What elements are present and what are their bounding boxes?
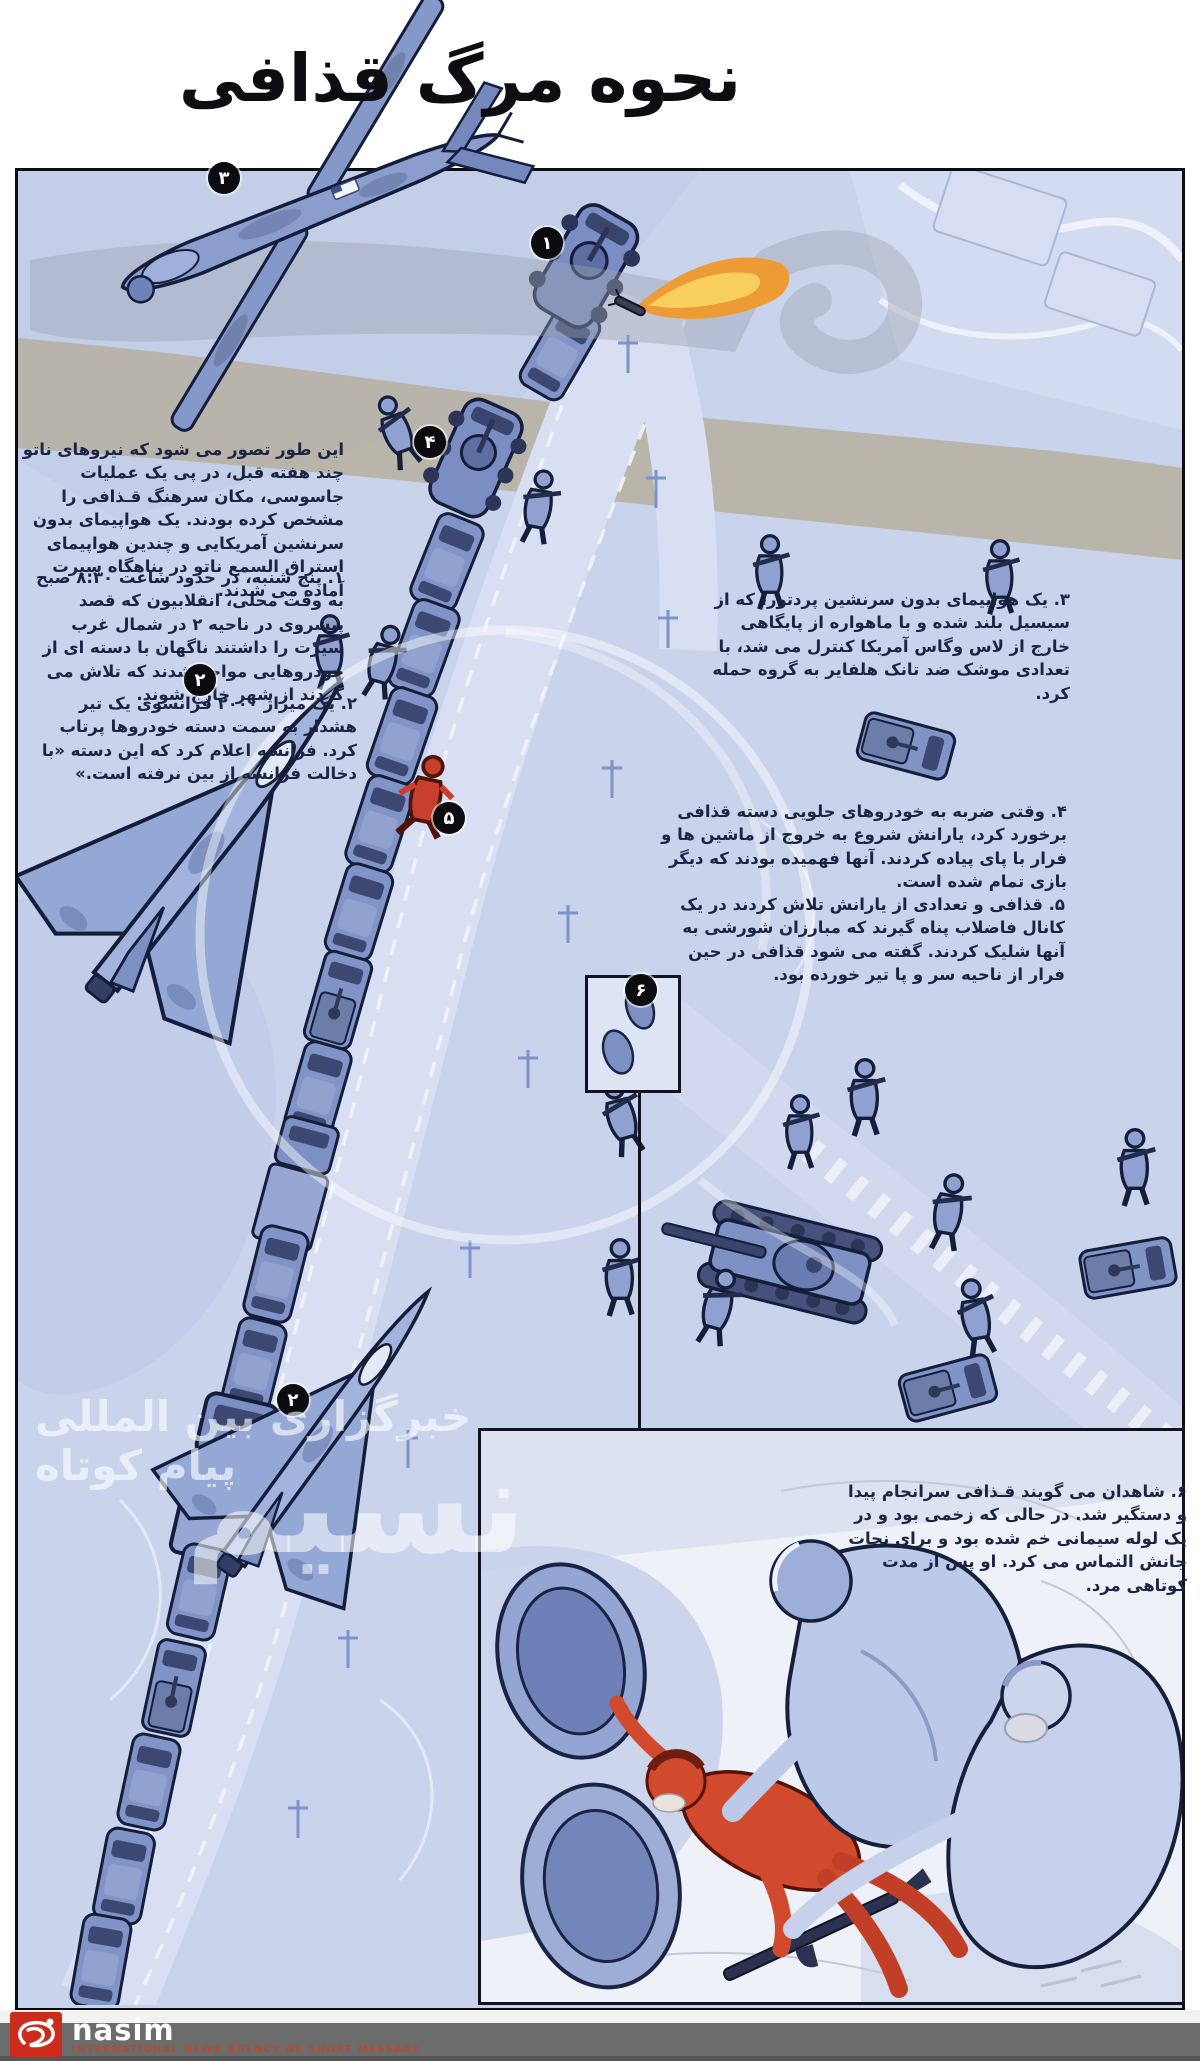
brand-tagline: INTERNATIONAL NEWS AGENCY OF SHORT MESSA…: [72, 2044, 420, 2055]
badge-culvert: ۶: [625, 974, 657, 1006]
infographic-page: نحوه مرگ قذافی: [0, 0, 1200, 2061]
badge-lead-vehicle: ۱: [531, 227, 563, 259]
brand-name: nasim: [72, 2016, 420, 2044]
callout-connector-line: [638, 1088, 641, 1428]
step-4-text: ۴. وقتی ضربه به خودروهای جلویی دسته قذاف…: [655, 800, 1067, 894]
badge-drone: ۳: [208, 162, 240, 194]
step-3-text: ۳. یک هواپیمای بدون سرنشین پردتور، که از…: [700, 588, 1070, 705]
badge-runner: ۵: [433, 802, 465, 834]
step-1-text: ۱. پنج شنبه، در حدود ساعت ۸:۳۰ صبح به وق…: [22, 566, 344, 707]
footer-bar: nasim INTERNATIONAL NEWS AGENCY OF SHORT…: [0, 2010, 1200, 2061]
step-6-text: ۶. شاهدان می گویند قـذافی سرانجام پیدا و…: [845, 1480, 1187, 1597]
badge-jet-upper: ۲: [184, 664, 216, 696]
badge-jet-lower: ۲: [277, 1384, 309, 1416]
step-2-text: ۲. یک میراژ ۲۰۰۰ فرانسوی یک تیر هشدار به…: [22, 692, 357, 786]
page-title: نحوه مرگ قذافی: [150, 40, 770, 117]
step-5-text: ۵. قذافی و تعدادی از یارانش تلاش کردند د…: [650, 893, 1065, 987]
badge-apc: ۴: [414, 426, 446, 458]
nasim-logo-icon: [10, 2012, 62, 2057]
